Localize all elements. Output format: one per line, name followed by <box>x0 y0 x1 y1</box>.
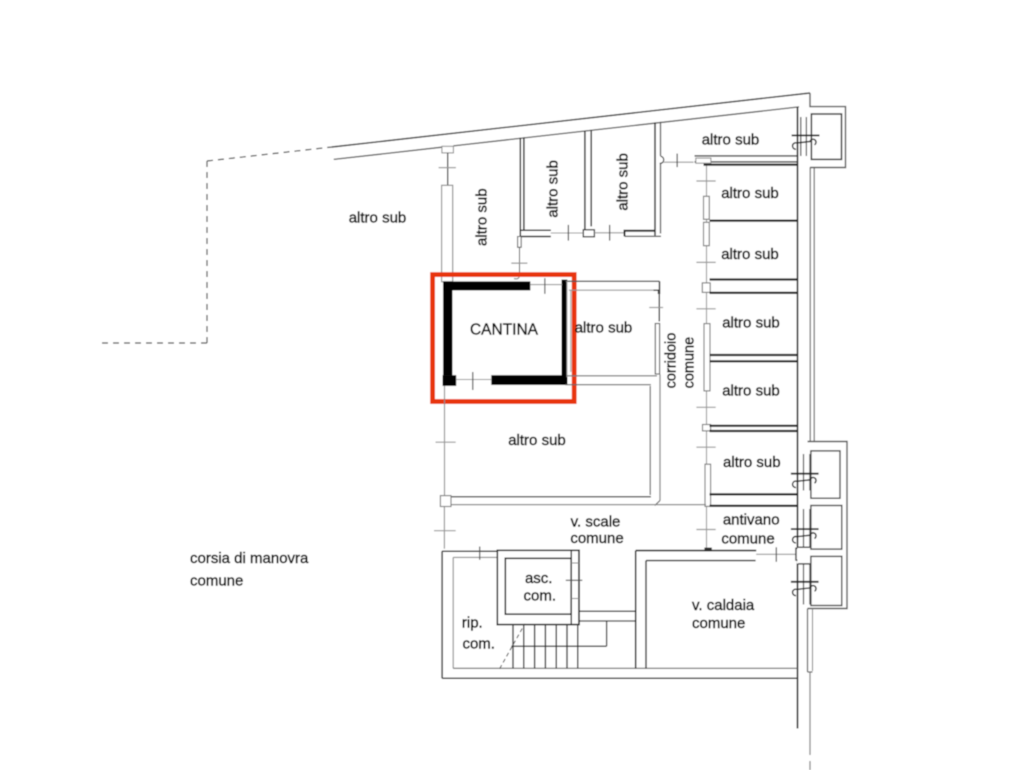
svg-text:comune: comune <box>190 572 243 589</box>
svg-text:corsia di manovra: corsia di manovra <box>190 550 309 567</box>
svg-text:altro sub: altro sub <box>721 185 779 202</box>
svg-text:comune: comune <box>681 337 697 389</box>
svg-text:altro sub: altro sub <box>544 160 561 218</box>
svg-text:v. scale: v. scale <box>571 514 621 531</box>
svg-text:altro sub: altro sub <box>723 454 781 471</box>
svg-text:com.: com. <box>524 588 557 605</box>
svg-text:CANTINA: CANTINA <box>470 321 539 338</box>
svg-text:altro sub: altro sub <box>722 383 780 400</box>
svg-text:rip.: rip. <box>462 615 483 632</box>
svg-text:comune: comune <box>721 530 774 547</box>
svg-text:altro sub: altro sub <box>349 209 407 226</box>
svg-text:altro sub: altro sub <box>473 188 490 246</box>
svg-text:comune: comune <box>692 615 745 632</box>
svg-text:altro sub: altro sub <box>702 131 760 148</box>
svg-text:v. caldaia: v. caldaia <box>692 597 755 614</box>
svg-text:antivano: antivano <box>723 511 780 528</box>
svg-text:altro sub: altro sub <box>721 246 779 263</box>
svg-text:com.: com. <box>462 636 495 653</box>
svg-text:corridoio: corridoio <box>664 333 680 389</box>
svg-text:altro sub: altro sub <box>508 432 566 449</box>
svg-text:altro sub: altro sub <box>722 314 780 331</box>
svg-text:altro sub: altro sub <box>615 153 632 211</box>
svg-text:asc.: asc. <box>525 570 553 587</box>
svg-text:comune: comune <box>570 530 623 547</box>
svg-text:altro sub: altro sub <box>575 319 633 336</box>
